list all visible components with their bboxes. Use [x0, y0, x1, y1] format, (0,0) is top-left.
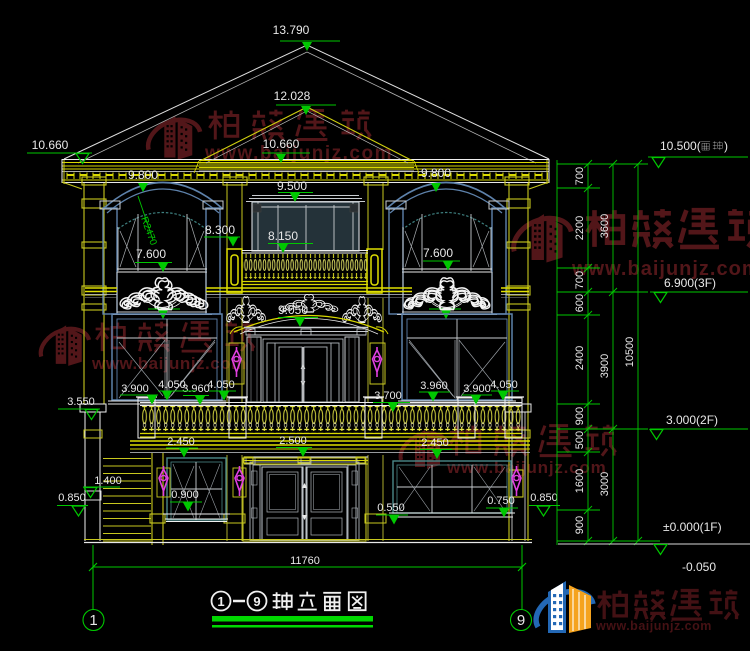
svg-text:www.baijunjz.com: www.baijunjz.com — [571, 258, 750, 280]
svg-text:0.850: 0.850 — [58, 492, 86, 504]
svg-text:3.550: 3.550 — [67, 396, 95, 408]
svg-text:-0.050: -0.050 — [682, 560, 716, 574]
svg-text:12.028: 12.028 — [274, 89, 311, 103]
svg-text:900: 900 — [574, 407, 586, 425]
svg-text:2.450: 2.450 — [167, 436, 195, 448]
svg-text:500: 500 — [574, 431, 586, 449]
svg-text:7.600: 7.600 — [423, 246, 453, 260]
svg-text:10.500(: 10.500( — [660, 139, 701, 153]
svg-text:1: 1 — [89, 612, 97, 629]
svg-text:0.550: 0.550 — [377, 502, 405, 514]
svg-text:13.790: 13.790 — [273, 23, 310, 37]
svg-text:0.750: 0.750 — [487, 495, 515, 507]
svg-text:2.500: 2.500 — [279, 435, 307, 447]
svg-text:700: 700 — [574, 167, 586, 185]
svg-text:3900: 3900 — [599, 354, 611, 378]
svg-text:8.150: 8.150 — [268, 229, 298, 243]
svg-text:3.000(2F): 3.000(2F) — [666, 413, 718, 427]
svg-text:0.900: 0.900 — [171, 489, 199, 501]
svg-text:3.900: 3.900 — [121, 383, 149, 395]
svg-text:3.960: 3.960 — [182, 383, 210, 395]
svg-text:9.050: 9.050 — [278, 303, 308, 317]
svg-text:7.600: 7.600 — [136, 247, 166, 261]
svg-text:9.500: 9.500 — [277, 179, 307, 193]
svg-text:1: 1 — [217, 594, 224, 609]
svg-text:9: 9 — [517, 612, 525, 629]
svg-text:8.300: 8.300 — [205, 223, 235, 237]
svg-text:4.050: 4.050 — [207, 379, 235, 391]
svg-text:1600: 1600 — [574, 469, 586, 493]
svg-text:3.700: 3.700 — [374, 390, 402, 402]
svg-text:900: 900 — [574, 516, 586, 534]
svg-text:4.050: 4.050 — [490, 379, 518, 391]
svg-text:600: 600 — [574, 294, 586, 312]
svg-text:1.400: 1.400 — [94, 475, 122, 487]
svg-text:2.450: 2.450 — [421, 437, 449, 449]
svg-text:3.900: 3.900 — [463, 383, 491, 395]
svg-text:): ) — [724, 139, 728, 153]
svg-text:9.800: 9.800 — [128, 168, 158, 182]
svg-text:0.850: 0.850 — [530, 492, 558, 504]
svg-text:3600: 3600 — [599, 214, 611, 238]
svg-text:3000: 3000 — [599, 472, 611, 496]
svg-text:2200: 2200 — [574, 216, 586, 240]
svg-text:10.660: 10.660 — [263, 137, 300, 151]
svg-text:3.960: 3.960 — [420, 380, 448, 392]
svg-text:11760: 11760 — [290, 555, 320, 567]
svg-text:www.baijunjz.com: www.baijunjz.com — [595, 619, 712, 633]
svg-text:2400: 2400 — [574, 346, 586, 370]
svg-text:±0.000(1F): ±0.000(1F) — [663, 520, 722, 534]
svg-text:6.900(3F): 6.900(3F) — [664, 276, 716, 290]
svg-text:9: 9 — [253, 594, 260, 609]
svg-text:10500: 10500 — [624, 337, 636, 368]
svg-text:9.800: 9.800 — [421, 166, 451, 180]
svg-text:10.660: 10.660 — [32, 138, 69, 152]
svg-text:700: 700 — [574, 271, 586, 289]
